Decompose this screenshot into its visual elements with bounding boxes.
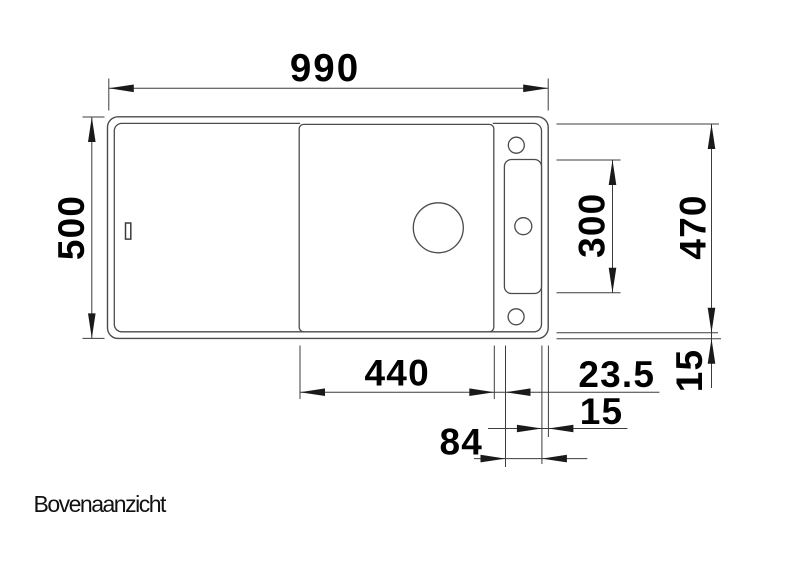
svg-text:500: 500 <box>51 195 92 260</box>
svg-text:84: 84 <box>440 422 484 463</box>
svg-text:990: 990 <box>290 47 360 90</box>
svg-text:23.5: 23.5 <box>578 354 655 395</box>
svg-text:Bovenaanzicht: Bovenaanzicht <box>34 491 167 517</box>
svg-text:15: 15 <box>669 349 710 393</box>
svg-text:440: 440 <box>365 353 430 394</box>
svg-text:470: 470 <box>672 194 713 259</box>
svg-text:300: 300 <box>572 193 613 258</box>
svg-text:15: 15 <box>580 391 624 432</box>
